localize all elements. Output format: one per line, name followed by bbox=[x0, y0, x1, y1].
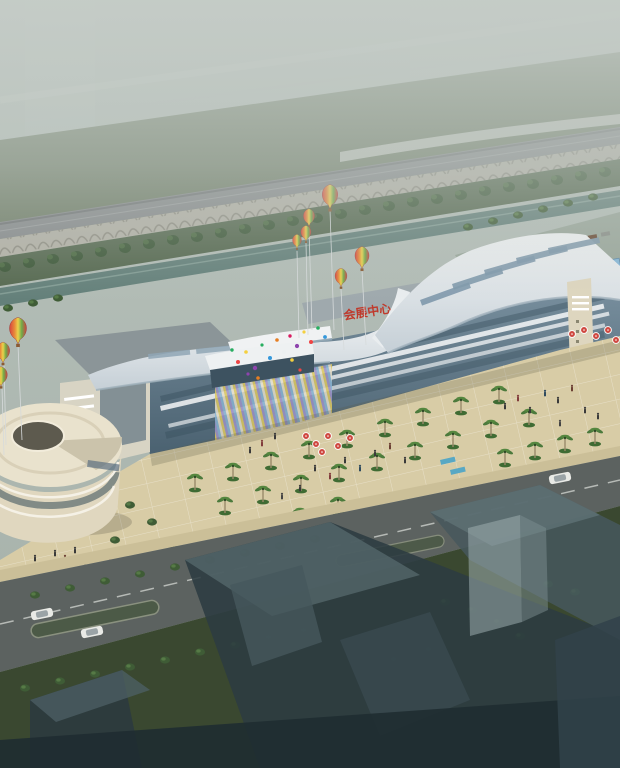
scene-svg: 会展中心 bbox=[0, 0, 620, 768]
ghost-block bbox=[555, 616, 620, 768]
ghost-tower-side bbox=[520, 515, 548, 622]
architectural-rendering: 会展中心 bbox=[0, 0, 620, 768]
drum-building bbox=[0, 403, 132, 543]
atmospheric-haze bbox=[0, 0, 620, 300]
ghost-tower bbox=[468, 515, 522, 636]
